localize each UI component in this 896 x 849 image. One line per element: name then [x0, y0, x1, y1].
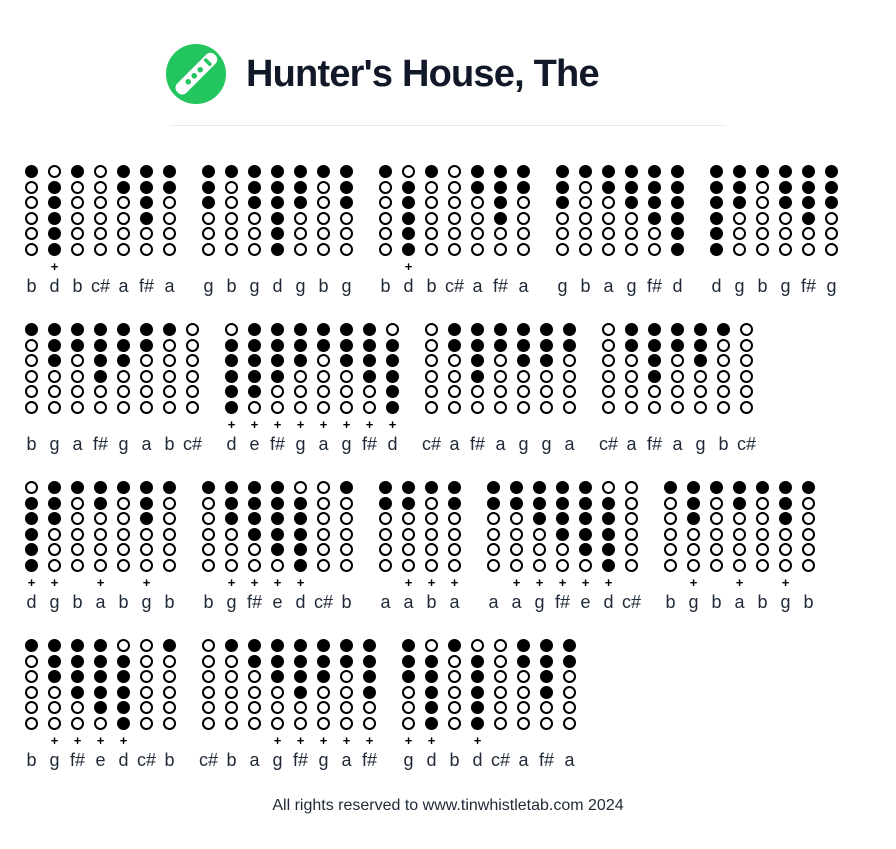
hole-open-icon [425, 497, 438, 510]
hole-filled-icon [602, 559, 615, 572]
hole-open-icon [71, 196, 84, 209]
note-label: d [387, 434, 397, 455]
hole-filled-icon [540, 339, 553, 352]
note-column: a [71, 323, 84, 455]
hole-filled-icon [271, 370, 284, 383]
hole-open-icon [140, 701, 153, 714]
hole-open-icon [379, 512, 392, 525]
note-column: a [494, 323, 507, 455]
hole-filled-icon [25, 543, 38, 556]
hole-open-icon [202, 497, 215, 510]
hole-open-icon [648, 385, 661, 398]
hole-filled-icon [363, 670, 376, 683]
note-column: b [25, 323, 38, 455]
hole-open-icon [317, 212, 330, 225]
hole-open-icon [248, 686, 261, 699]
hole-open-icon [340, 670, 353, 683]
note-column: b [71, 481, 84, 613]
hole-open-icon [517, 243, 530, 256]
hole-filled-icon [294, 655, 307, 668]
fingering-holes [202, 639, 215, 732]
hole-open-icon [186, 323, 199, 336]
hole-open-icon [117, 227, 130, 240]
note-label: b [711, 592, 721, 613]
fingering-holes [540, 639, 553, 732]
note-label: g [49, 434, 59, 455]
note-column: b [117, 481, 130, 613]
hole-open-icon [25, 370, 38, 383]
hole-filled-icon [248, 181, 261, 194]
hole-open-icon [448, 512, 461, 525]
note-label: g [118, 434, 128, 455]
hole-open-icon [517, 701, 530, 714]
hole-filled-icon [425, 686, 438, 699]
hole-open-icon [802, 243, 815, 256]
hole-open-icon [48, 717, 61, 730]
note-label: b [26, 276, 36, 297]
note-column: d [710, 165, 723, 297]
hole-open-icon [117, 543, 130, 556]
hole-open-icon [448, 196, 461, 209]
hole-filled-icon [517, 181, 530, 194]
hole-open-icon [425, 370, 438, 383]
hole-filled-icon [710, 481, 723, 494]
note-label: a [341, 750, 351, 771]
hole-open-icon [94, 528, 107, 541]
hole-filled-icon [363, 339, 376, 352]
hole-open-icon [379, 227, 392, 240]
hole-open-icon [494, 243, 507, 256]
fingering-holes [556, 165, 569, 258]
hole-filled-icon [379, 481, 392, 494]
hole-open-icon [140, 670, 153, 683]
note-column: c# [602, 323, 615, 455]
hole-open-icon [163, 212, 176, 225]
note-column: +f# [271, 323, 284, 455]
tab-group: gbgdgbg [202, 165, 353, 297]
note-column: +d [402, 165, 415, 297]
hole-open-icon [517, 227, 530, 240]
hole-open-icon [448, 686, 461, 699]
hole-filled-icon [602, 512, 615, 525]
note-label: a [472, 276, 482, 297]
note-column: b [664, 481, 677, 613]
hole-open-icon [140, 639, 153, 652]
note-label: d [472, 750, 482, 771]
hole-open-icon [248, 701, 261, 714]
hole-filled-icon [117, 181, 130, 194]
hole-filled-icon [294, 196, 307, 209]
hole-filled-icon [517, 655, 530, 668]
note-label: a [141, 434, 151, 455]
hole-open-icon [425, 559, 438, 572]
tab-group: b+gb+ab+gb [664, 481, 815, 613]
fingering-holes [71, 481, 84, 574]
hole-filled-icon [363, 655, 376, 668]
hole-open-icon [94, 227, 107, 240]
hole-open-icon [94, 243, 107, 256]
note-label: g [826, 276, 836, 297]
hole-filled-icon [779, 165, 792, 178]
note-column: +a [733, 481, 746, 613]
hole-open-icon [448, 227, 461, 240]
hole-filled-icon [556, 512, 569, 525]
note-label: g [688, 592, 698, 613]
hole-open-icon [563, 717, 576, 730]
hole-open-icon [517, 670, 530, 683]
hole-open-icon [117, 639, 130, 652]
note-column: a [248, 639, 261, 771]
fingering-holes [448, 481, 461, 574]
hole-open-icon [163, 227, 176, 240]
hole-filled-icon [48, 323, 61, 336]
fingering-holes [494, 323, 507, 416]
octave-plus: + [405, 733, 413, 748]
note-label: d [118, 750, 128, 771]
note-label: b [803, 592, 813, 613]
hole-filled-icon [94, 670, 107, 683]
hole-open-icon [602, 196, 615, 209]
hole-open-icon [25, 717, 38, 730]
hole-open-icon [186, 354, 199, 367]
fingering-holes [225, 481, 238, 574]
hole-open-icon [225, 528, 238, 541]
hole-open-icon [163, 559, 176, 572]
hole-filled-icon [25, 528, 38, 541]
hole-open-icon [294, 401, 307, 414]
note-label: b [26, 750, 36, 771]
hole-open-icon [602, 227, 615, 240]
hole-open-icon [687, 559, 700, 572]
fingering-holes [802, 481, 815, 574]
hole-filled-icon [294, 165, 307, 178]
hole-filled-icon [533, 497, 546, 510]
note-column: g [625, 165, 638, 297]
note-label: g [695, 434, 705, 455]
hole-open-icon [494, 354, 507, 367]
hole-filled-icon [48, 497, 61, 510]
note-column: a [448, 323, 461, 455]
hole-open-icon [425, 543, 438, 556]
note-label: f# [247, 592, 262, 613]
hole-filled-icon [386, 385, 399, 398]
hole-filled-icon [294, 497, 307, 510]
hole-open-icon [48, 701, 61, 714]
note-column: g [202, 165, 215, 297]
hole-open-icon [494, 227, 507, 240]
hole-open-icon [664, 497, 677, 510]
octave-plus: + [559, 575, 567, 590]
hole-open-icon [202, 639, 215, 652]
hole-open-icon [802, 559, 815, 572]
hole-open-icon [140, 655, 153, 668]
hole-open-icon [163, 543, 176, 556]
note-column: +g [271, 639, 284, 771]
hole-filled-icon [248, 497, 261, 510]
hole-filled-icon [271, 670, 284, 683]
hole-open-icon [225, 701, 238, 714]
hole-filled-icon [779, 481, 792, 494]
note-column: g [517, 323, 530, 455]
note-label: g [295, 434, 305, 455]
hole-open-icon [694, 370, 707, 383]
hole-filled-icon [710, 212, 723, 225]
hole-open-icon [487, 512, 500, 525]
fingering-holes [140, 639, 153, 732]
note-label: b [203, 592, 213, 613]
hole-filled-icon [402, 497, 415, 510]
note-label: d [711, 276, 721, 297]
hole-filled-icon [425, 655, 438, 668]
hole-open-icon [710, 559, 723, 572]
hole-filled-icon [248, 370, 261, 383]
hole-filled-icon [710, 196, 723, 209]
hole-open-icon [733, 227, 746, 240]
hole-filled-icon [294, 686, 307, 699]
hole-open-icon [71, 512, 84, 525]
hole-filled-icon [779, 196, 792, 209]
hole-filled-icon [117, 717, 130, 730]
note-column: b [163, 323, 176, 455]
hole-filled-icon [340, 481, 353, 494]
note-label: b [164, 434, 174, 455]
hole-open-icon [340, 497, 353, 510]
hole-open-icon [71, 528, 84, 541]
hole-open-icon [294, 481, 307, 494]
fingering-holes [717, 323, 730, 416]
hole-filled-icon [202, 165, 215, 178]
hole-open-icon [740, 339, 753, 352]
hole-open-icon [117, 212, 130, 225]
hole-open-icon [340, 227, 353, 240]
note-label: g [226, 592, 236, 613]
hole-filled-icon [386, 354, 399, 367]
hole-open-icon [25, 686, 38, 699]
hole-open-icon [402, 701, 415, 714]
hole-open-icon [248, 401, 261, 414]
hole-filled-icon [248, 512, 261, 525]
octave-plus: + [320, 733, 328, 748]
note-label: g [734, 276, 744, 297]
hole-open-icon [140, 401, 153, 414]
hole-filled-icon [225, 354, 238, 367]
tab-group: c#af#agbc# [602, 323, 753, 455]
hole-open-icon [602, 385, 615, 398]
hole-filled-icon [248, 165, 261, 178]
hole-open-icon [448, 670, 461, 683]
hole-open-icon [25, 401, 38, 414]
note-label: b [665, 592, 675, 613]
hole-filled-icon [710, 165, 723, 178]
octave-plus: + [51, 259, 59, 274]
octave-plus: + [405, 575, 413, 590]
hole-open-icon [779, 227, 792, 240]
fingering-holes [163, 481, 176, 574]
hole-open-icon [140, 528, 153, 541]
octave-plus: + [320, 417, 328, 432]
hole-filled-icon [48, 655, 61, 668]
note-label: a [518, 276, 528, 297]
hole-filled-icon [733, 181, 746, 194]
hole-open-icon [186, 385, 199, 398]
hole-open-icon [471, 212, 484, 225]
hole-filled-icon [271, 639, 284, 652]
hole-filled-icon [402, 639, 415, 652]
note-label: g [534, 592, 544, 613]
tab-group: a+a+b+a [379, 481, 461, 613]
note-label: g [780, 592, 790, 613]
note-label: f# [93, 434, 108, 455]
hole-filled-icon [579, 497, 592, 510]
hole-filled-icon [648, 196, 661, 209]
hole-filled-icon [517, 323, 530, 336]
hole-open-icon [340, 528, 353, 541]
hole-open-icon [340, 701, 353, 714]
hole-filled-icon [379, 497, 392, 510]
octave-plus: + [343, 417, 351, 432]
hole-open-icon [733, 243, 746, 256]
hole-open-icon [48, 370, 61, 383]
note-label: g [626, 276, 636, 297]
note-label: c# [737, 434, 756, 455]
hole-filled-icon [117, 701, 130, 714]
hole-open-icon [802, 227, 815, 240]
hole-open-icon [717, 401, 730, 414]
hole-open-icon [487, 559, 500, 572]
fingering-holes [294, 323, 307, 416]
hole-open-icon [225, 717, 238, 730]
hole-open-icon [71, 212, 84, 225]
hole-open-icon [494, 686, 507, 699]
hole-open-icon [140, 717, 153, 730]
hole-open-icon [471, 639, 484, 652]
hole-filled-icon [802, 181, 815, 194]
hole-filled-icon [294, 670, 307, 683]
octave-plus: + [97, 575, 105, 590]
hole-open-icon [71, 181, 84, 194]
hole-open-icon [648, 401, 661, 414]
hole-open-icon [117, 559, 130, 572]
octave-plus: + [343, 733, 351, 748]
note-column: +g [402, 639, 415, 771]
hole-filled-icon [271, 181, 284, 194]
fingering-holes [579, 481, 592, 574]
hole-open-icon [779, 543, 792, 556]
hole-filled-icon [471, 354, 484, 367]
hole-open-icon [425, 401, 438, 414]
note-column: g [694, 323, 707, 455]
octave-plus: + [536, 575, 544, 590]
note-label: f# [362, 434, 377, 455]
hole-open-icon [248, 670, 261, 683]
hole-open-icon [602, 323, 615, 336]
hole-filled-icon [363, 370, 376, 383]
fingering-holes [533, 481, 546, 574]
hole-filled-icon [140, 512, 153, 525]
hole-filled-icon [25, 497, 38, 510]
fingering-holes [48, 165, 61, 258]
hole-filled-icon [671, 165, 684, 178]
note-label: f# [293, 750, 308, 771]
hole-filled-icon [563, 655, 576, 668]
hole-open-icon [225, 212, 238, 225]
hole-open-icon [363, 717, 376, 730]
hole-open-icon [271, 559, 284, 572]
hole-open-icon [563, 670, 576, 683]
fingering-holes [271, 165, 284, 258]
hole-filled-icon [271, 512, 284, 525]
fingering-holes [386, 323, 399, 416]
tab-row: +d+gb+ab+gbb+g+f#+e+dc#ba+a+b+aa+a+g+f#+… [25, 481, 896, 613]
hole-open-icon [402, 543, 415, 556]
hole-filled-icon [694, 323, 707, 336]
hole-filled-icon [717, 323, 730, 336]
octave-plus: + [120, 733, 128, 748]
fingering-holes [563, 323, 576, 416]
hole-filled-icon [163, 323, 176, 336]
tab-group: b+g+f#+e+dc#b [202, 481, 353, 613]
hole-filled-icon [579, 165, 592, 178]
note-column: b [802, 481, 815, 613]
hole-open-icon [425, 639, 438, 652]
fingering-holes [71, 323, 84, 416]
hole-filled-icon [386, 370, 399, 383]
hole-open-icon [802, 497, 815, 510]
hole-open-icon [448, 165, 461, 178]
hole-open-icon [579, 227, 592, 240]
fingering-holes [317, 165, 330, 258]
note-column: f# [471, 323, 484, 455]
hole-filled-icon [163, 165, 176, 178]
note-column: b [756, 165, 769, 297]
fingering-holes [825, 165, 838, 258]
note-label: a [318, 434, 328, 455]
hole-open-icon [517, 370, 530, 383]
hole-open-icon [494, 401, 507, 414]
hole-open-icon [556, 559, 569, 572]
note-label: a [495, 434, 505, 455]
hole-filled-icon [163, 481, 176, 494]
hole-open-icon [25, 481, 38, 494]
hole-filled-icon [733, 481, 746, 494]
hole-filled-icon [294, 181, 307, 194]
hole-filled-icon [140, 481, 153, 494]
hole-open-icon [717, 339, 730, 352]
hole-open-icon [94, 181, 107, 194]
hole-filled-icon [225, 370, 238, 383]
note-label: b [757, 592, 767, 613]
note-column: +a [340, 639, 353, 771]
note-column: g [248, 165, 261, 297]
fingering-holes [363, 323, 376, 416]
fingering-holes [94, 323, 107, 416]
fingering-holes [494, 165, 507, 258]
hole-filled-icon [471, 181, 484, 194]
note-label: d [49, 276, 59, 297]
hole-open-icon [494, 670, 507, 683]
note-label: c# [183, 434, 202, 455]
hole-open-icon [664, 528, 677, 541]
hole-open-icon [163, 512, 176, 525]
hole-open-icon [425, 528, 438, 541]
hole-filled-icon [779, 181, 792, 194]
hole-filled-icon [271, 323, 284, 336]
hole-open-icon [425, 339, 438, 352]
hole-filled-icon [733, 497, 746, 510]
hole-filled-icon [471, 701, 484, 714]
fingering-holes [425, 481, 438, 574]
hole-filled-icon [402, 670, 415, 683]
